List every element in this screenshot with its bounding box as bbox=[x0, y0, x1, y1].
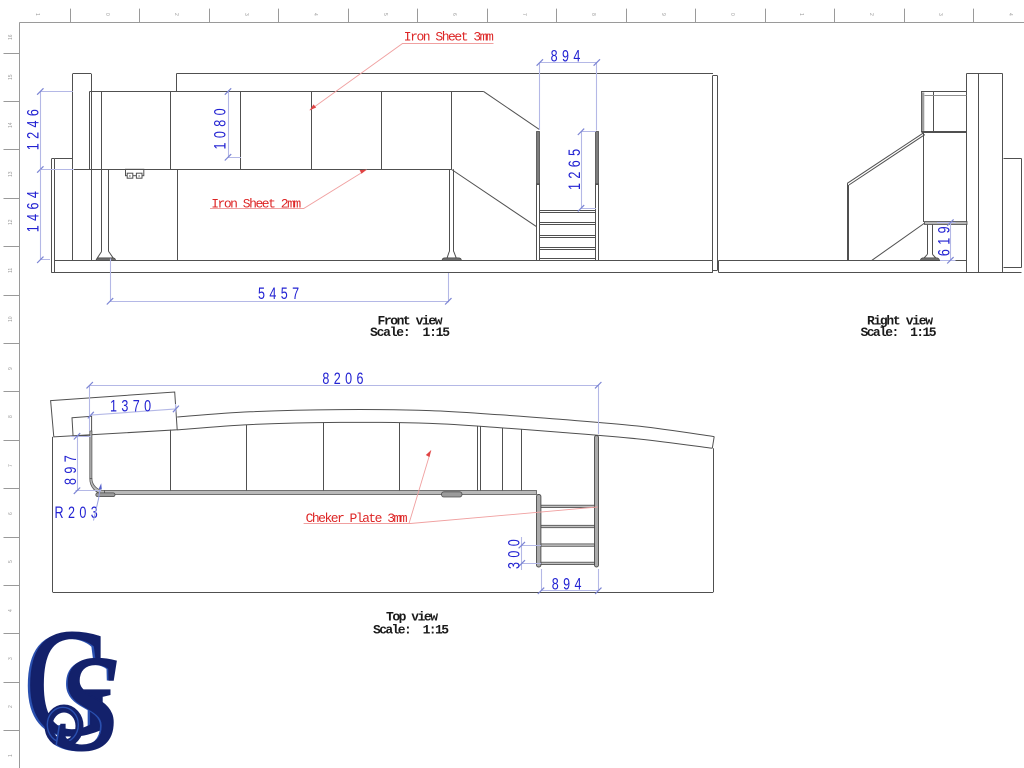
svg-text:10: 10 bbox=[8, 316, 14, 322]
svg-text:13: 13 bbox=[8, 171, 14, 177]
svg-text:Iron Sheet 3mm: Iron Sheet 3mm bbox=[404, 30, 494, 45]
svg-text:1370: 1370 bbox=[110, 398, 156, 416]
svg-text:5: 5 bbox=[382, 13, 388, 16]
svg-text:1: 1 bbox=[8, 754, 14, 757]
svg-text:7: 7 bbox=[521, 13, 527, 16]
svg-text:1080: 1080 bbox=[212, 104, 230, 150]
svg-text:4: 4 bbox=[312, 13, 318, 16]
svg-text:Scale: 1:15: Scale: 1:15 bbox=[370, 325, 450, 340]
svg-text:Scale: 1:15: Scale: 1:15 bbox=[373, 623, 449, 638]
svg-text:14: 14 bbox=[8, 122, 14, 128]
svg-text:1: 1 bbox=[798, 13, 804, 16]
svg-text:300: 300 bbox=[506, 535, 524, 569]
svg-text:16: 16 bbox=[8, 34, 14, 40]
svg-text:894: 894 bbox=[552, 576, 586, 594]
svg-text:1265: 1265 bbox=[566, 144, 584, 190]
svg-text:3: 3 bbox=[8, 657, 14, 660]
svg-text:7: 7 bbox=[8, 464, 14, 467]
svg-text:3: 3 bbox=[937, 13, 943, 16]
svg-text:894: 894 bbox=[551, 48, 585, 66]
svg-text:11: 11 bbox=[8, 268, 14, 273]
svg-text:S: S bbox=[56, 629, 118, 768]
svg-text:4: 4 bbox=[1007, 13, 1013, 16]
svg-text:15: 15 bbox=[8, 74, 14, 80]
svg-text:8: 8 bbox=[8, 415, 14, 418]
svg-text:1464: 1464 bbox=[25, 187, 43, 233]
svg-text:897: 897 bbox=[63, 451, 81, 485]
svg-text:619: 619 bbox=[936, 222, 954, 256]
svg-text:12: 12 bbox=[8, 219, 14, 225]
svg-text:Iron Sheet 2mm: Iron Sheet 2mm bbox=[211, 197, 301, 212]
svg-text:8206: 8206 bbox=[322, 371, 368, 389]
svg-text:9: 9 bbox=[660, 13, 666, 16]
svg-text:0: 0 bbox=[104, 13, 110, 16]
svg-text:Scale: 1:15: Scale: 1:15 bbox=[861, 325, 937, 340]
svg-text:3: 3 bbox=[243, 13, 249, 16]
svg-text:0: 0 bbox=[729, 13, 735, 16]
svg-text:2: 2 bbox=[173, 13, 179, 16]
svg-text:6: 6 bbox=[8, 512, 14, 515]
svg-text:4: 4 bbox=[8, 609, 14, 612]
svg-text:2: 2 bbox=[8, 705, 14, 708]
svg-text:1246: 1246 bbox=[25, 105, 43, 151]
svg-text:5457: 5457 bbox=[258, 285, 304, 303]
svg-text:1: 1 bbox=[34, 13, 40, 16]
svg-text:8: 8 bbox=[590, 13, 596, 16]
svg-text:6: 6 bbox=[451, 13, 457, 16]
svg-text:5: 5 bbox=[8, 560, 14, 563]
svg-text:2: 2 bbox=[868, 13, 874, 16]
svg-text:9: 9 bbox=[8, 367, 14, 370]
